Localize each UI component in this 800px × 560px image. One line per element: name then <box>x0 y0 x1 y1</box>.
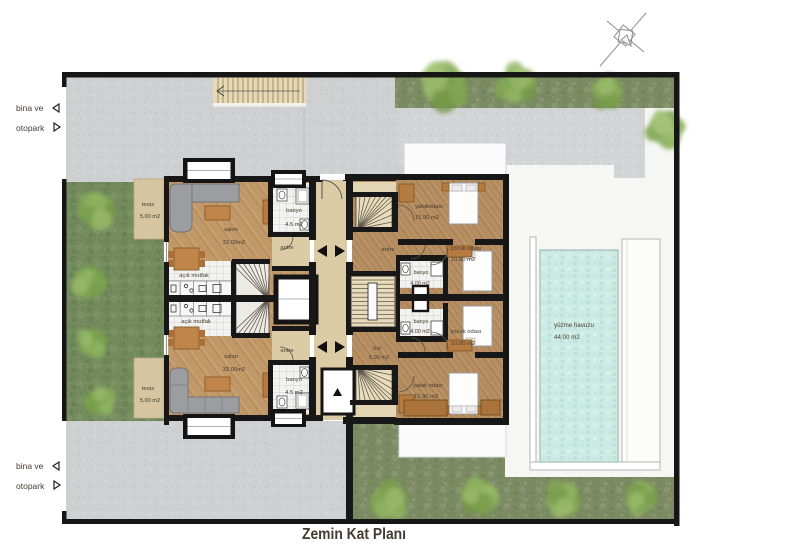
svg-text:Zemin Kat Planı: Zemin Kat Planı <box>302 526 406 543</box>
svg-text:10.00 m2: 10.00 m2 <box>451 257 475 263</box>
svg-text:bina ve: bina ve <box>16 461 44 471</box>
svg-text:44.00 m2: 44.00 m2 <box>554 334 580 341</box>
svg-text:banyo: banyo <box>286 208 302 214</box>
svg-text:4.5 m2: 4.5 m2 <box>285 222 303 228</box>
svg-text:yüzme havuzu: yüzme havuzu <box>554 322 594 329</box>
svg-text:çocuk odası: çocuk odası <box>451 329 482 335</box>
svg-text:açık mutfak: açık mutfak <box>181 319 211 325</box>
svg-text:32.00m2: 32.00m2 <box>223 367 246 373</box>
svg-text:15.90 m2: 15.90 m2 <box>415 215 439 221</box>
svg-text:otopark: otopark <box>16 481 45 491</box>
svg-text:yatak odası: yatak odası <box>413 383 443 389</box>
svg-text:yatakodası: yatakodası <box>415 204 443 210</box>
svg-text:otopark: otopark <box>16 123 45 133</box>
svg-text:antre: antre <box>381 247 394 253</box>
svg-text:15.90 m2: 15.90 m2 <box>414 394 438 400</box>
svg-text:6.00 m2: 6.00 m2 <box>369 355 389 361</box>
svg-text:banyo: banyo <box>414 319 429 325</box>
svg-text:açık mutfak: açık mutfak <box>179 273 209 279</box>
svg-text:antre: antre <box>280 348 293 354</box>
svg-text:çocuk odası: çocuk odası <box>451 246 482 252</box>
svg-text:10.00 m2: 10.00 m2 <box>451 341 475 347</box>
svg-text:32.00m2: 32.00m2 <box>223 240 246 246</box>
svg-text:5.00 m2: 5.00 m2 <box>140 214 160 220</box>
svg-text:teras: teras <box>142 386 155 392</box>
svg-text:4.5 m2: 4.5 m2 <box>285 390 303 396</box>
svg-text:banyo: banyo <box>414 270 429 276</box>
svg-text:banyo: banyo <box>286 377 302 383</box>
svg-text:teras: teras <box>142 202 155 208</box>
svg-text:4.00 m2: 4.00 m2 <box>410 329 429 335</box>
svg-text:4.00 m2: 4.00 m2 <box>410 281 429 287</box>
svg-text:salon: salon <box>224 354 238 360</box>
svg-text:bina ve: bina ve <box>16 103 44 113</box>
svg-text:hol: hol <box>373 346 380 352</box>
svg-text:salon: salon <box>224 227 238 233</box>
svg-text:5.00 m2: 5.00 m2 <box>140 398 160 404</box>
svg-text:antre: antre <box>280 245 293 251</box>
